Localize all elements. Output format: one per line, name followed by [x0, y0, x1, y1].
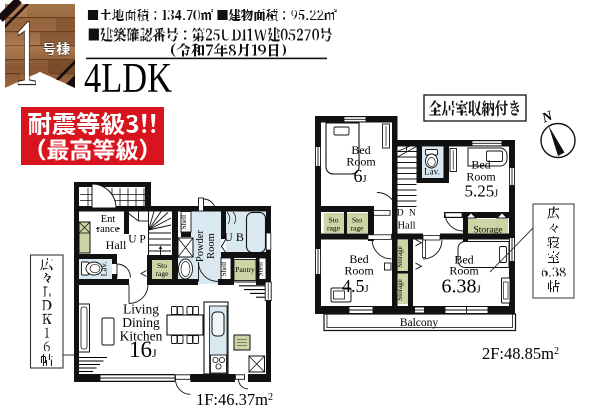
svg-text:Room: Room [206, 233, 217, 259]
svg-text:Lav.: Lav. [424, 167, 440, 177]
svg-text:Shelf: Shelf [220, 261, 228, 276]
svg-text:Lav.: Lav. [99, 262, 109, 277]
svg-text:Pantry: Pantry [235, 265, 255, 274]
svg-text:Shelf: Shelf [180, 214, 188, 229]
svg-text:rage: rage [156, 269, 170, 278]
svg-text:6.38J: 6.38J [442, 276, 482, 298]
svg-text:rage: rage [351, 224, 365, 233]
svg-text:rance: rance [97, 224, 120, 235]
svg-text:Powder: Powder [195, 229, 206, 262]
svg-text:4LDK: 4LDK [84, 56, 172, 102]
svg-text:U B: U B [224, 230, 244, 244]
svg-text:2F:48.85m2: 2F:48.85m2 [482, 344, 559, 363]
svg-text:1F:46.37m2: 1F:46.37m2 [196, 390, 273, 409]
svg-text:rage: rage [327, 224, 341, 233]
svg-text:Shelf: Shelf [257, 261, 265, 276]
svg-text:Balcony: Balcony [400, 317, 439, 329]
svg-text:1: 1 [14, 2, 38, 105]
svg-text:Storage: Storage [396, 279, 404, 300]
svg-text:D N: D N [397, 209, 418, 219]
svg-text:Hall: Hall [106, 238, 127, 252]
svg-text:Storage: Storage [396, 246, 404, 267]
svg-text:5.25J: 5.25J [465, 182, 499, 201]
svg-text:Hall: Hall [397, 221, 415, 232]
svg-text:U P: U P [128, 234, 146, 246]
